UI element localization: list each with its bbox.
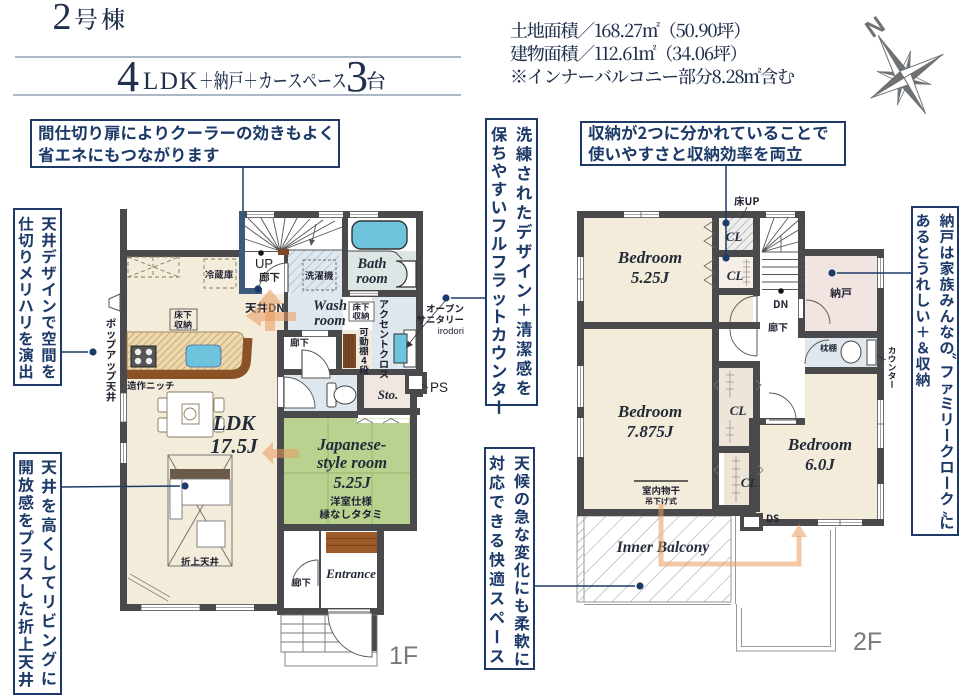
svg-text:5.25J: 5.25J	[631, 268, 670, 287]
svg-text:17.5J: 17.5J	[210, 434, 259, 458]
svg-text:room: room	[356, 271, 387, 287]
svg-text:Japanese-: Japanese-	[317, 435, 387, 454]
svg-text:Wash: Wash	[313, 298, 347, 314]
svg-text:Bedroom: Bedroom	[617, 248, 682, 267]
svg-text:CL: CL	[730, 403, 747, 418]
svg-text:PS: PS	[430, 380, 448, 395]
svg-text:Bedroom: Bedroom	[787, 435, 852, 454]
svg-text:room: room	[314, 313, 345, 329]
svg-text:CL: CL	[726, 229, 743, 244]
svg-text:Entrance: Entrance	[325, 566, 376, 581]
svg-text:5.25J: 5.25J	[333, 473, 371, 492]
svg-text:6.0J: 6.0J	[805, 455, 835, 474]
svg-text:1F: 1F	[389, 642, 418, 670]
svg-text:style room: style room	[316, 453, 387, 472]
svg-text:7.875J: 7.875J	[627, 422, 674, 441]
svg-text:CL: CL	[727, 268, 744, 283]
svg-text:N: N	[860, 11, 890, 43]
svg-text:2F: 2F	[853, 628, 882, 656]
svg-text:2: 2	[53, 0, 72, 38]
svg-text:Sto.: Sto.	[378, 387, 399, 402]
svg-text:3: 3	[346, 52, 368, 101]
svg-text:4: 4	[117, 52, 139, 101]
svg-text:Bedroom: Bedroom	[617, 402, 682, 421]
svg-text:LDK: LDK	[143, 68, 199, 95]
svg-text:CL: CL	[741, 475, 758, 490]
svg-text:irodori: irodori	[438, 326, 464, 337]
svg-text:LDK: LDK	[212, 411, 257, 435]
svg-text:Bath: Bath	[356, 256, 386, 272]
